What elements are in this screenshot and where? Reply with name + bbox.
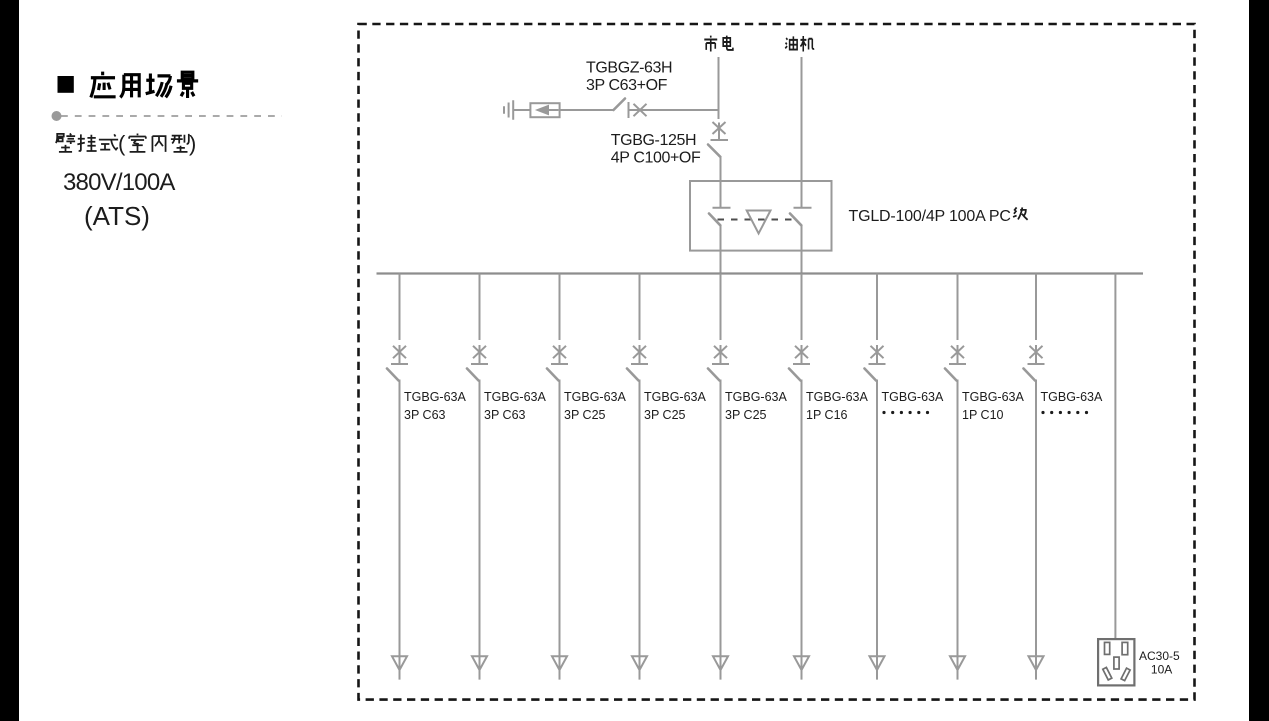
svg-text:4P C100+OF: 4P C100+OF: [611, 150, 701, 167]
svg-text:TGBG-63A: TGBG-63A: [882, 390, 944, 404]
svg-text:TGBG-125H: TGBG-125H: [611, 132, 696, 149]
svg-text:TGBG-63A: TGBG-63A: [404, 390, 466, 404]
svg-text:AC30-5: AC30-5: [1139, 649, 1180, 663]
svg-text:(ATS): (ATS): [84, 201, 150, 231]
svg-text:TGBG-63A: TGBG-63A: [484, 390, 546, 404]
svg-text:TGBG-63A: TGBG-63A: [962, 390, 1024, 404]
svg-text:TGBG-63A: TGBG-63A: [806, 390, 868, 404]
svg-text:TGBG-63A: TGBG-63A: [644, 390, 706, 404]
svg-text:TGBG-63A: TGBG-63A: [725, 390, 787, 404]
svg-text:): ): [189, 131, 196, 156]
svg-text:TGBG-63A: TGBG-63A: [564, 390, 626, 404]
svg-text:TGBGZ-63H: TGBGZ-63H: [586, 60, 672, 77]
svg-text:3P C25: 3P C25: [644, 408, 686, 422]
svg-text:3P C63+OF: 3P C63+OF: [586, 77, 668, 94]
svg-text:TGBG-63A: TGBG-63A: [1041, 390, 1103, 404]
svg-text:1P C16: 1P C16: [806, 408, 848, 422]
svg-text:3P C63: 3P C63: [484, 408, 526, 422]
svg-text:1P C10: 1P C10: [962, 408, 1004, 422]
svg-text:10A: 10A: [1151, 663, 1172, 677]
svg-text:3P C63: 3P C63: [404, 408, 446, 422]
svg-text:(: (: [118, 131, 126, 156]
svg-text:3P C25: 3P C25: [564, 408, 606, 422]
svg-text:TGLD-100/4P 100A PC: TGLD-100/4P 100A PC: [849, 208, 1011, 225]
svg-text:380V/100A: 380V/100A: [63, 169, 175, 196]
svg-text:3P C25: 3P C25: [725, 408, 767, 422]
